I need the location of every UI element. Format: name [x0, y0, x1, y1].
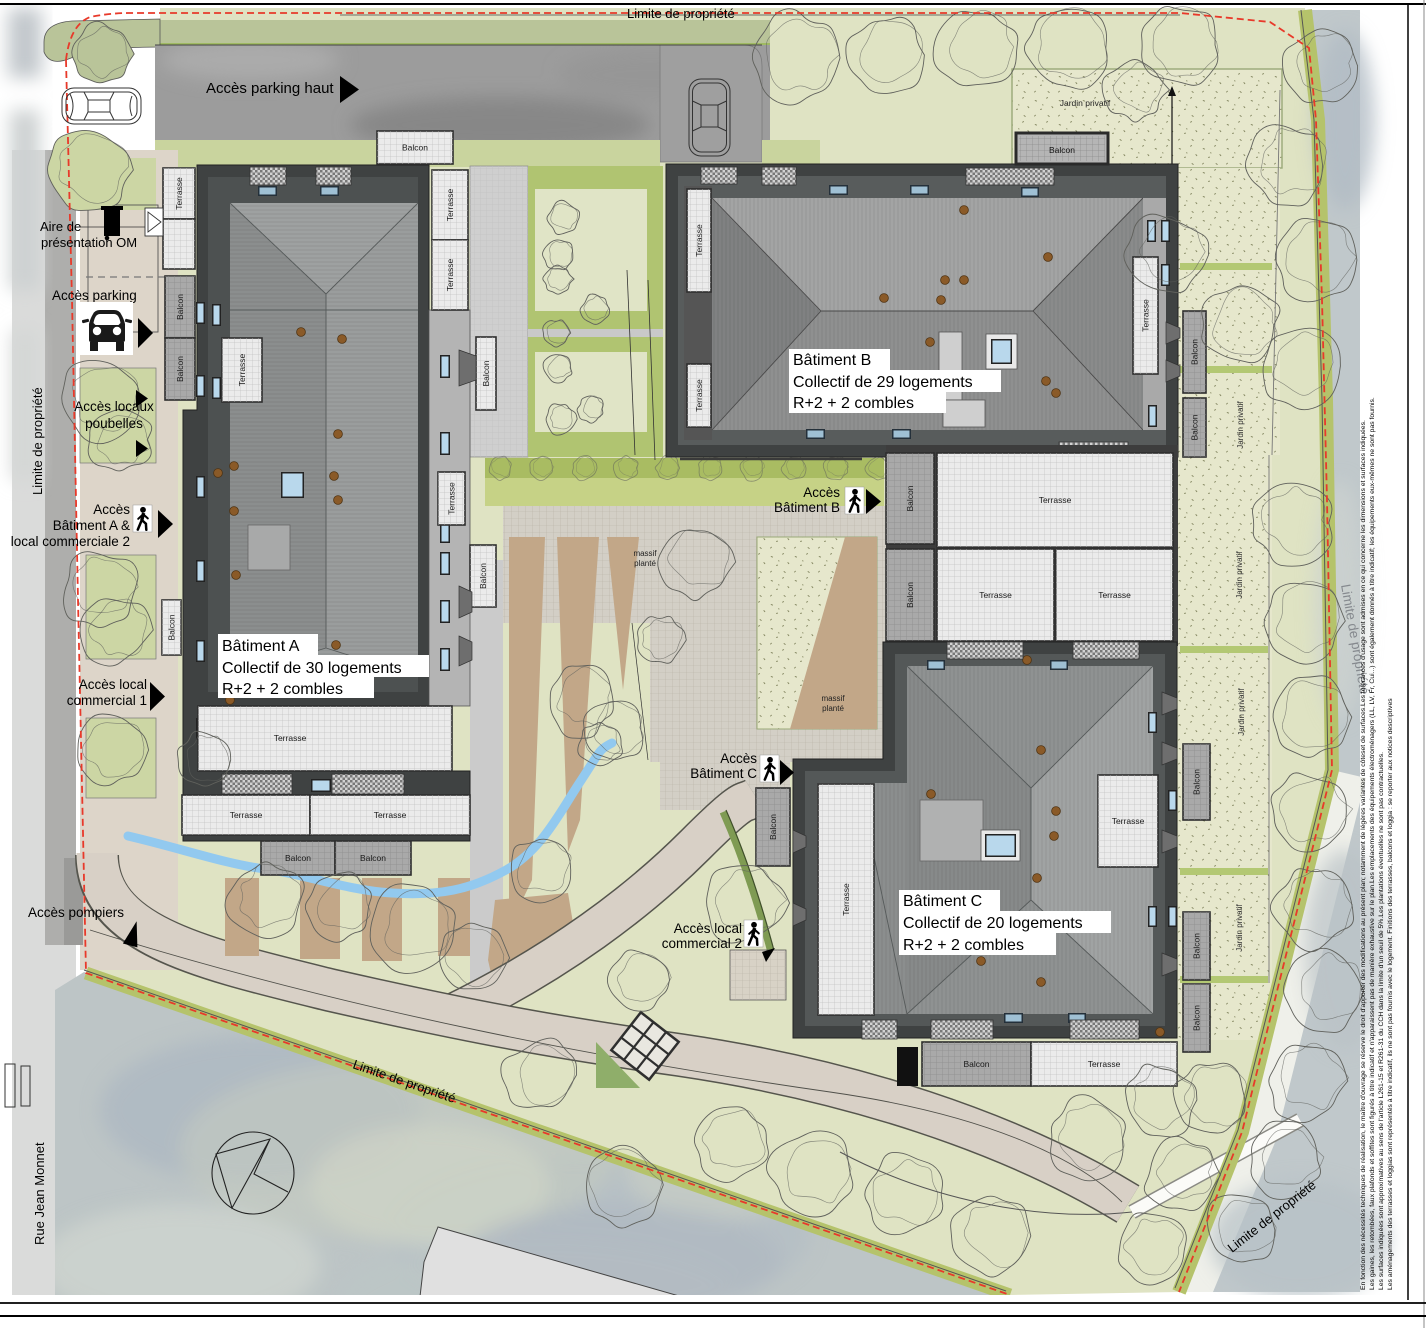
svg-text:Accès: Accès	[803, 485, 840, 500]
svg-text:Terrasse: Terrasse	[230, 810, 263, 820]
svg-text:Terrasse: Terrasse	[374, 810, 407, 820]
svg-text:Balcon: Balcon	[478, 563, 488, 589]
svg-text:Les surfaces indiquées sont ap: Les surfaces indiquées sont approximativ…	[1378, 752, 1385, 1290]
svg-text:Accès pompiers: Accès pompiers	[28, 905, 124, 920]
svg-text:Les aménagements des terrasses: Les aménagements des terrasses et loggia…	[1387, 698, 1394, 1290]
svg-text:Terrasse: Terrasse	[445, 258, 455, 291]
svg-text:Collectif de 29 logements: Collectif de 29 logements	[793, 374, 973, 391]
svg-text:Terrasse: Terrasse	[1088, 1059, 1121, 1069]
svg-text:Terrasse: Terrasse	[694, 224, 704, 257]
svg-text:Terrasse: Terrasse	[237, 353, 247, 386]
svg-text:Balcon: Balcon	[1192, 1005, 1202, 1031]
svg-text:Accès parking: Accès parking	[52, 288, 137, 303]
svg-text:Balcon: Balcon	[285, 853, 311, 863]
svg-text:Bâtiment B: Bâtiment B	[793, 352, 871, 369]
svg-text:Bâtiment C: Bâtiment C	[690, 766, 757, 781]
svg-text:Accès local: Accès local	[79, 677, 147, 692]
svg-text:R+2 + 2 combles: R+2 + 2 combles	[222, 681, 343, 698]
svg-text:Balcon: Balcon	[768, 814, 778, 840]
svg-text:commercial 2: commercial 2	[662, 936, 742, 951]
svg-text:Collectif de 20 logements: Collectif de 20 logements	[903, 915, 1083, 932]
svg-text:En fonction des nécessités tec: En fonction des nécessités techniques de…	[1360, 420, 1367, 1290]
svg-text:Bâtiment A &: Bâtiment A &	[53, 518, 130, 533]
svg-text:Balcon: Balcon	[964, 1059, 990, 1069]
svg-text:Terrasse: Terrasse	[1098, 590, 1131, 600]
svg-text:Jardin privatif: Jardin privatif	[1235, 550, 1244, 598]
svg-text:Jardin privatif: Jardin privatif	[1237, 687, 1246, 735]
svg-text:Terrasse: Terrasse	[694, 379, 704, 412]
svg-text:Balcon: Balcon	[1049, 145, 1075, 155]
svg-text:planté: planté	[634, 559, 656, 568]
svg-text:Terrasse: Terrasse	[979, 590, 1012, 600]
svg-text:R+2 + 2 combles: R+2 + 2 combles	[793, 395, 914, 412]
svg-text:Balcon: Balcon	[1190, 339, 1200, 365]
svg-text:Balcon: Balcon	[905, 485, 915, 511]
svg-text:Les gaines, les retombées, fau: Les gaines, les retombées, faux plafonds…	[1369, 397, 1376, 1290]
svg-text:Balcon: Balcon	[402, 143, 428, 153]
svg-text:planté: planté	[822, 704, 844, 713]
svg-text:Balcon: Balcon	[175, 294, 185, 320]
svg-text:Balcon: Balcon	[481, 360, 491, 386]
svg-text:Jardin privatif: Jardin privatif	[1060, 98, 1111, 108]
svg-text:Bâtiment A: Bâtiment A	[222, 638, 300, 655]
svg-text:Terrasse: Terrasse	[1112, 816, 1145, 826]
svg-text:commercial 1: commercial 1	[67, 693, 147, 708]
svg-text:Terrasse: Terrasse	[445, 188, 455, 221]
svg-text:Bâtiment C: Bâtiment C	[903, 893, 982, 910]
svg-text:Balcon: Balcon	[905, 582, 915, 608]
svg-text:présentation OM: présentation OM	[41, 235, 137, 250]
svg-text:Jardin privatif: Jardin privatif	[1235, 903, 1244, 951]
svg-text:Accès: Accès	[720, 751, 757, 766]
svg-text:Balcon: Balcon	[167, 614, 177, 640]
svg-text:massif: massif	[633, 549, 657, 558]
svg-text:Bâtiment B: Bâtiment B	[774, 500, 840, 515]
svg-text:R+2 + 2 combles: R+2 + 2 combles	[903, 937, 1024, 954]
svg-text:Accès local: Accès local	[674, 921, 742, 936]
svg-text:Rue Jean Monnet: Rue Jean Monnet	[32, 1142, 47, 1245]
svg-text:Balcon: Balcon	[1190, 414, 1200, 440]
svg-text:Limite de propriété: Limite de propriété	[627, 6, 735, 21]
svg-text:Jardin privatif: Jardin privatif	[1236, 400, 1245, 448]
svg-text:Balcon: Balcon	[360, 853, 386, 863]
svg-text:Limite de propriété: Limite de propriété	[30, 387, 45, 495]
svg-text:poubelles: poubelles	[85, 416, 143, 431]
svg-text:Balcon: Balcon	[1192, 933, 1202, 959]
svg-text:Terrasse: Terrasse	[1039, 495, 1072, 505]
svg-text:Terrasse: Terrasse	[1141, 299, 1151, 332]
svg-text:Terrasse: Terrasse	[841, 883, 851, 916]
svg-text:massif: massif	[821, 694, 845, 703]
svg-text:Accès: Accès	[93, 502, 130, 517]
svg-text:Aire de: Aire de	[40, 219, 81, 234]
svg-text:Terrasse: Terrasse	[274, 733, 307, 743]
svg-text:Accès parking haut: Accès parking haut	[206, 80, 334, 97]
svg-text:Balcon: Balcon	[1192, 769, 1202, 795]
svg-text:Balcon: Balcon	[175, 356, 185, 382]
svg-text:Collectif de 30 logements: Collectif de 30 logements	[222, 660, 402, 677]
svg-text:Terrasse: Terrasse	[447, 482, 457, 515]
svg-text:local commerciale 2: local commerciale 2	[11, 534, 130, 549]
svg-text:Terrasse: Terrasse	[174, 177, 184, 210]
